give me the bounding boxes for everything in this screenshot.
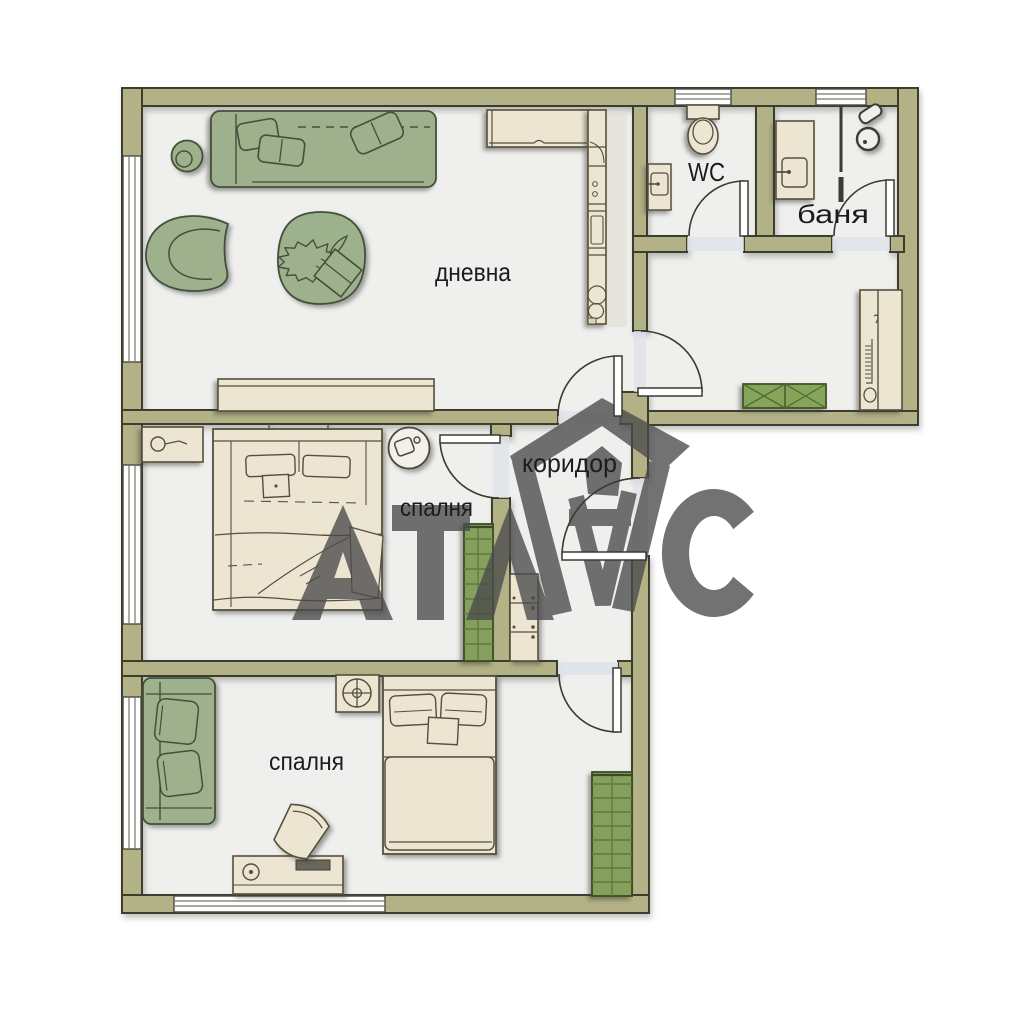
svg-text:коридор: коридор [522,448,617,478]
svg-text:спалня: спалня [269,748,344,776]
svg-text:баня: баня [797,199,869,229]
svg-text:дневна: дневна [435,257,511,287]
svg-text:WC: WC [688,157,725,187]
svg-text:спалня: спалня [400,494,473,522]
